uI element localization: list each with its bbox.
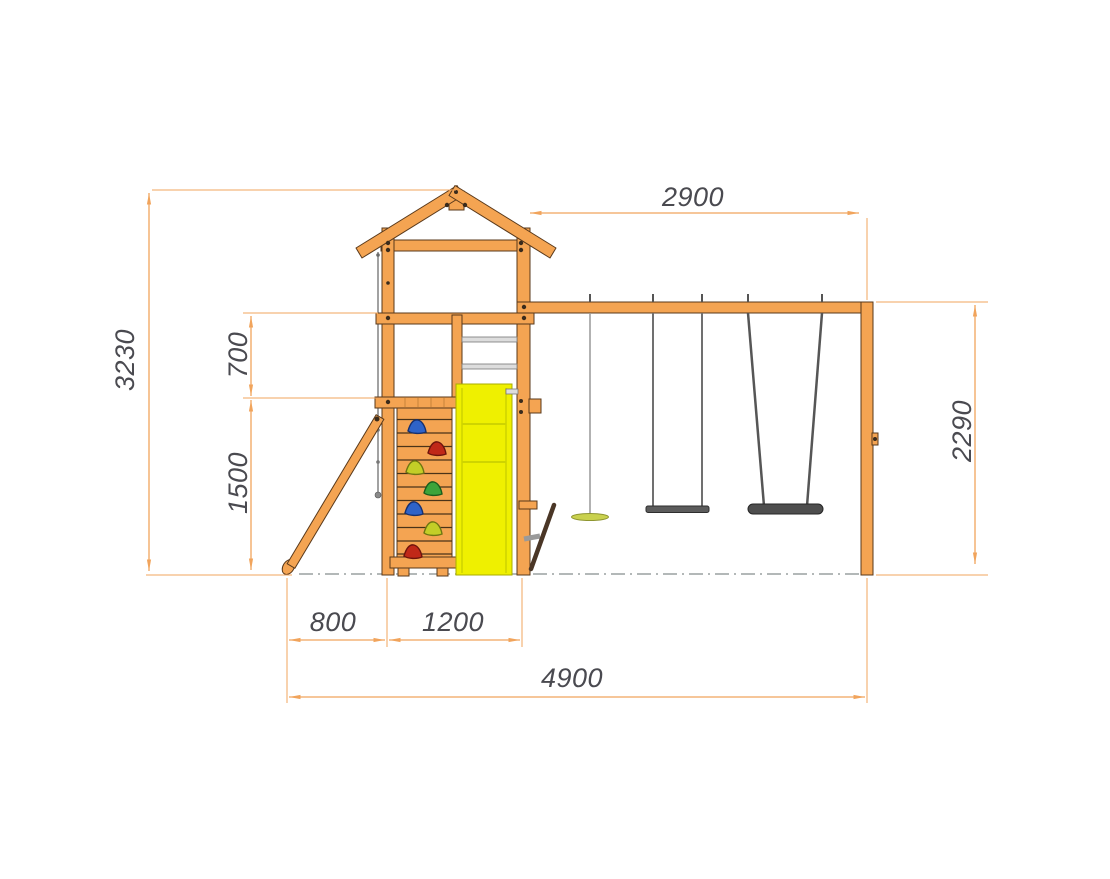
rope-end-knob — [375, 492, 381, 498]
nest-swing-seat — [748, 504, 823, 514]
swing-beam — [517, 302, 873, 313]
slide-body — [456, 384, 512, 575]
climbing-wall — [390, 408, 462, 576]
dim-label-overall-length: 4900 — [541, 663, 603, 693]
tower-right-post — [517, 228, 530, 575]
drawing-svg: 3230 700 1500 2900 2290 800 — [0, 0, 1110, 879]
flat-seat-swing — [646, 313, 709, 513]
post-bolt — [873, 437, 877, 441]
rail-bracket — [529, 399, 541, 413]
dim-label-rail-to-platform: 700 — [223, 332, 253, 379]
brace-bar — [287, 415, 384, 569]
swing-rope — [748, 313, 764, 506]
ladder — [462, 337, 517, 369]
disc-swing — [572, 313, 609, 521]
dim-label-overall-height: 3230 — [110, 329, 140, 391]
dim-swing-frame-height: 2290 — [876, 302, 988, 575]
ladder-rung-stub — [506, 389, 518, 394]
hanging-rope — [375, 252, 381, 498]
dimensions: 3230 700 1500 2900 2290 800 — [110, 182, 988, 703]
play-tower — [280, 228, 554, 577]
dim-tower-footprint: 1200 — [389, 578, 522, 647]
wall-base-board — [390, 557, 462, 568]
wall-foot — [398, 568, 409, 576]
step-tread — [524, 536, 540, 539]
dim-label-brace-footprint: 800 — [310, 607, 357, 637]
wall-foot — [437, 568, 448, 576]
dim-label-platform-height: 1500 — [223, 452, 253, 514]
dim-label-swing-bay: 2900 — [661, 182, 724, 212]
dim-brace-footprint: 800 — [287, 578, 387, 703]
swing-rope — [807, 313, 822, 506]
dim-swing-bay: 2900 — [530, 182, 867, 300]
slide — [456, 384, 518, 575]
dim-platform-height: 1500 — [223, 400, 253, 570]
brace-bolt — [375, 417, 380, 422]
collar-beam — [381, 240, 529, 251]
dim-rail-to-platform: 700 — [223, 313, 380, 398]
dim-label-tower-footprint: 1200 — [422, 607, 484, 637]
rope-knot — [376, 460, 380, 464]
disc-swing-seat — [572, 514, 609, 521]
dim-label-swing-frame-height: 2290 — [947, 400, 977, 463]
playground-dimension-drawing: 3230 700 1500 2900 2290 800 — [0, 0, 1110, 879]
ladder-rung — [462, 337, 517, 342]
step-bracket — [519, 501, 537, 509]
flat-swing-seat — [646, 506, 709, 513]
nest-swing — [748, 313, 823, 514]
ladder-rung — [462, 364, 517, 369]
swing-module — [517, 294, 878, 575]
diagonal-brace — [280, 415, 384, 577]
swing-hangers — [590, 294, 822, 302]
end-support-post — [861, 302, 873, 575]
